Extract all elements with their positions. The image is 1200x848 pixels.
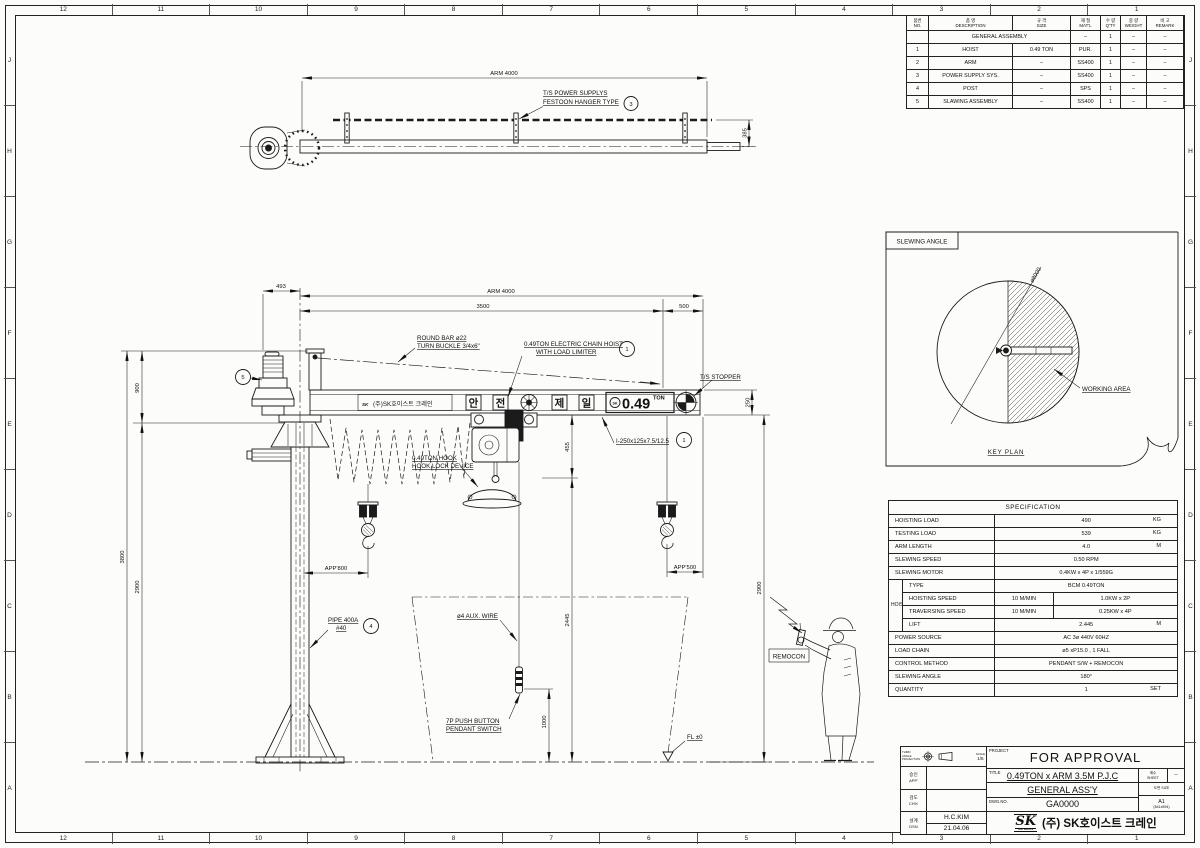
dim-2900-right: 2900 bbox=[757, 582, 763, 595]
hook-label-2: HOOK LOCK DEVICE bbox=[412, 463, 474, 470]
fl-label: FL ±0 bbox=[687, 734, 703, 741]
cell: – bbox=[1013, 83, 1071, 96]
cell: POWER SUPPLY SYS. bbox=[929, 70, 1013, 83]
dim-2900-left: 2900 bbox=[135, 581, 141, 594]
spec-value: 0.4KW x 4P x 1/559G bbox=[995, 567, 1178, 580]
size-value-mm: (841x594) bbox=[1153, 805, 1169, 809]
hook-right bbox=[657, 416, 677, 549]
beam-char-1: 안 bbox=[469, 397, 479, 410]
dim-1000: 1000 bbox=[542, 716, 548, 729]
approve-en: APP' bbox=[909, 778, 918, 783]
fan-emblem bbox=[521, 395, 537, 411]
keyplan-caption: KEY PLAN bbox=[988, 449, 1025, 456]
drawing-title-line2: GENERAL ASS'Y bbox=[1027, 785, 1097, 795]
design-row: 설계DSN H.C.KIM21.04.06 bbox=[901, 812, 986, 834]
dim-app800: APP'800 bbox=[325, 566, 347, 572]
spec-label: LOAD CHAIN bbox=[889, 645, 995, 658]
spec-value: 10 M/MIN bbox=[995, 593, 1053, 606]
project-label: PROJECT bbox=[989, 748, 1009, 753]
cell: POST bbox=[929, 83, 1013, 96]
spec-label: SLEWING SPEED bbox=[889, 554, 995, 567]
festoon-label-2: FESTOON HANGER TYPE bbox=[543, 99, 619, 106]
cell: – bbox=[1121, 96, 1147, 109]
spec-unit: KG bbox=[1153, 517, 1161, 523]
sk-logo-sub: S.K HOIST bbox=[1015, 828, 1036, 832]
parts-header-row: 품번NO. 품 명DESCRIPTION 규 격SIZE 재 질MAT'L 수 … bbox=[907, 16, 1184, 31]
cell: 0.49 TON bbox=[1013, 44, 1071, 57]
cell: – bbox=[1121, 44, 1147, 57]
project-value: FOR APPROVAL bbox=[1030, 750, 1141, 765]
spec-label: SLEWING MOTOR bbox=[889, 567, 995, 580]
beam-char-4: 일 bbox=[582, 397, 592, 410]
cell: 1 bbox=[1101, 96, 1121, 109]
fl-marker bbox=[663, 752, 673, 761]
title-row-2: GENERAL ASS'Y bbox=[987, 782, 1138, 796]
size-value-cell: A1 (841x594) bbox=[1139, 796, 1184, 811]
cell: 1 bbox=[1101, 31, 1121, 44]
balloon-4-number: 4 bbox=[369, 624, 373, 630]
tie-rod bbox=[317, 358, 660, 384]
table-row: GENERAL ASSEMBLY–1–– bbox=[907, 31, 1184, 44]
table-row: 3POWER SUPPLY SYS.–SS4001–– bbox=[907, 70, 1184, 83]
pendant-switch bbox=[516, 667, 523, 693]
dwgno-label: DWG.NO. bbox=[989, 799, 1008, 804]
spec-unit: M bbox=[1156, 543, 1161, 549]
design-en: DSN bbox=[909, 824, 917, 829]
cell: – bbox=[1121, 83, 1147, 96]
scale-value: 1/5 bbox=[976, 756, 985, 761]
capacity-unit: TON bbox=[653, 396, 665, 402]
dim-500: 500 bbox=[679, 304, 689, 310]
dim-3500: 3500 bbox=[477, 304, 490, 310]
dim-3800: 3800 bbox=[120, 551, 126, 564]
cell: HOIST bbox=[929, 44, 1013, 57]
dim-2445: 2445 bbox=[565, 614, 571, 627]
cell: – bbox=[1147, 44, 1184, 57]
aux-wire-label: ø4 AUX. WIRE bbox=[457, 613, 498, 620]
spec-label: SLEWING ANGLE bbox=[889, 671, 995, 684]
spec-label: LIFT bbox=[903, 619, 995, 632]
page-curl bbox=[1121, 437, 1178, 466]
cell: 2 bbox=[907, 57, 929, 70]
spec-unit: KG bbox=[1153, 530, 1161, 536]
ts-stopper bbox=[674, 391, 698, 415]
radio-signal bbox=[770, 597, 802, 633]
beam-char-3: 제 bbox=[555, 397, 565, 410]
spec-value: 1.0KW x 2P bbox=[1053, 593, 1177, 606]
beam-section-label: I-250x125x7.5/12.5 bbox=[616, 438, 670, 445]
sheet-cell: 매수SHEET – bbox=[1139, 769, 1184, 783]
spec-value: 180° bbox=[995, 671, 1178, 684]
pipe-label-2: #40 bbox=[336, 625, 347, 632]
spec-label: POWER SOURCE bbox=[889, 632, 995, 645]
cell bbox=[907, 31, 929, 44]
dim-900: 900 bbox=[135, 383, 141, 393]
sheet-value: – bbox=[1168, 769, 1184, 782]
working-area-label: WORKING AREA bbox=[1082, 386, 1131, 393]
balloon-beam-number: 1 bbox=[682, 438, 685, 444]
worker-figure bbox=[798, 618, 860, 761]
spec-label: HOISTING LOAD bbox=[889, 515, 995, 528]
festoon-cable bbox=[330, 419, 470, 484]
title-label: TITLE bbox=[989, 770, 1000, 775]
spec-value: 1 bbox=[1085, 687, 1088, 693]
cell: – bbox=[1147, 31, 1184, 44]
beam-brand-text: (주)SK호이스트 크레인 bbox=[373, 400, 433, 408]
ts-stopper-label: T/S STOPPER bbox=[700, 374, 741, 381]
keyplan-title: SLEWING ANGLE bbox=[897, 239, 948, 246]
table-row: 2ARM–SS4001–– bbox=[907, 57, 1184, 70]
spec-label: ARM LENGTH bbox=[889, 541, 995, 554]
check-en: CH'K bbox=[909, 801, 918, 806]
hook-left bbox=[358, 484, 378, 549]
spec-value: 10 M/MIN bbox=[995, 606, 1053, 619]
pendant-label-1: 7P PUSH BUTTON bbox=[446, 718, 499, 725]
size-label-cell: 도면 SIZE bbox=[1139, 783, 1184, 797]
dim-arm4000: ARM 4000 bbox=[487, 289, 514, 295]
spec-hoist-group: HOIST bbox=[889, 580, 903, 632]
hoist-label-2: WITH LOAD LIMITER bbox=[536, 349, 597, 356]
cell: PUR. bbox=[1071, 44, 1101, 57]
pivot-plan bbox=[250, 127, 319, 169]
work-zone-outline bbox=[412, 597, 688, 761]
dim-493: 493 bbox=[276, 284, 286, 290]
plan-385-dim: 385 bbox=[743, 128, 749, 138]
cell: 1 bbox=[1101, 70, 1121, 83]
spec-label: CONTROL METHOD bbox=[889, 658, 995, 671]
balloon-5-number: 5 bbox=[241, 375, 244, 381]
drawing-title-line1: 0.49TON x ARM 3.5M P.J.C bbox=[1007, 771, 1118, 781]
balloon-1-number: 1 bbox=[625, 347, 628, 353]
festoon-hangers bbox=[345, 113, 687, 143]
remocon-label: REMOCON bbox=[773, 654, 805, 661]
cell: 3 bbox=[907, 70, 929, 83]
slewing-assembly bbox=[247, 352, 329, 461]
dim-455: 455 bbox=[565, 442, 571, 452]
cell: GENERAL ASSEMBLY bbox=[929, 31, 1071, 44]
capacity-logo: SK bbox=[613, 401, 618, 405]
parts-table: 품번NO. 품 명DESCRIPTION 규 격SIZE 재 질MAT'L 수 … bbox=[906, 15, 1184, 109]
cell: – bbox=[1013, 70, 1071, 83]
dwgno-value: GA0000 bbox=[1046, 799, 1079, 809]
check-value bbox=[927, 790, 986, 812]
cell: – bbox=[1147, 57, 1184, 70]
spec-value: 490 bbox=[1082, 518, 1091, 524]
festoon-label-1: T/S POWER SUPPLYS bbox=[543, 90, 608, 97]
table-row: 1HOIST0.49 TONPUR.1–– bbox=[907, 44, 1184, 57]
project-cell: PROJECT FOR APPROVAL bbox=[987, 747, 1184, 769]
sheet-en: SHEET bbox=[1147, 776, 1159, 780]
hook-label-1: 0.49TON HOOK bbox=[412, 455, 458, 462]
sk-logo-text: SK bbox=[1015, 814, 1036, 829]
cell: SS400 bbox=[1071, 57, 1101, 70]
key-plan-panel bbox=[886, 232, 1178, 466]
cell: – bbox=[1013, 57, 1071, 70]
col-no-en: NO. bbox=[907, 23, 928, 29]
spec-unit: SET bbox=[1150, 686, 1161, 692]
pipe-label-1: PIPE 400A bbox=[328, 617, 359, 624]
company-name: (주) SK호이스트 크레인 bbox=[1042, 815, 1157, 831]
cell: 1 bbox=[1101, 44, 1121, 57]
cell: 1 bbox=[1101, 83, 1121, 96]
spec-value: ø5 xP15.0 , 1 FALL bbox=[995, 645, 1178, 658]
beam-char-2: 전 bbox=[496, 397, 506, 410]
cell: 5 bbox=[907, 96, 929, 109]
approve-value bbox=[927, 767, 986, 789]
projection-cell: THIRD ANGLE PROJECTION SCALE1/5 bbox=[901, 747, 986, 767]
col-qty-en: Q'TY bbox=[1101, 23, 1120, 29]
sk-logo: SKS.K HOIST bbox=[1014, 814, 1037, 833]
cell: SPS bbox=[1071, 83, 1101, 96]
beam-brand-logo: SK bbox=[362, 402, 369, 407]
drawing-sheet: 121110987654321 121110987654321 JHGFEDCB… bbox=[0, 0, 1200, 848]
spec-value: 539 bbox=[1082, 531, 1091, 537]
dim-app500: APP'500 bbox=[674, 565, 696, 571]
spec-title: SPECIFICATION bbox=[889, 501, 1178, 515]
cell: SS400 bbox=[1071, 70, 1101, 83]
title-block: THIRD ANGLE PROJECTION SCALE1/5 승인APP' 검… bbox=[900, 746, 1185, 835]
dim-250: 250 bbox=[746, 398, 752, 408]
cell: – bbox=[1121, 31, 1147, 44]
cell: 1 bbox=[1101, 57, 1121, 70]
spec-value: 4.0 bbox=[1082, 544, 1090, 550]
spec-value: 0.25KW x 4P bbox=[1053, 606, 1177, 619]
crane-drawing: ARM 4000 T/S POWER SUPPLYS FESTOON HANGE… bbox=[0, 0, 1200, 848]
cell: – bbox=[1121, 57, 1147, 70]
designer-name: H.C.KIM bbox=[927, 812, 986, 822]
cell: – bbox=[1147, 83, 1184, 96]
col-rm-en: REMARK bbox=[1147, 23, 1183, 29]
balloon-3-number: 3 bbox=[629, 102, 632, 108]
design-date: 21.04.06 bbox=[927, 823, 986, 834]
cell: – bbox=[1121, 70, 1147, 83]
spec-value: BCM 0.49TON bbox=[995, 580, 1178, 593]
spec-value: 0.50 RPM bbox=[995, 554, 1178, 567]
title-row-1: TITLE0.49TON x ARM 3.5M P.J.C bbox=[987, 769, 1138, 782]
plan-arm-dim: ARM 4000 bbox=[490, 71, 517, 77]
spec-label: TRAVERSING SPEED bbox=[903, 606, 995, 619]
spec-label: HOISTING SPEED bbox=[903, 593, 995, 606]
check-row: 검도CH'K bbox=[901, 790, 986, 813]
spec-label: QUANTITY bbox=[889, 684, 995, 697]
col-matl-en: MAT'L bbox=[1071, 23, 1100, 29]
dwgno-row: DWG.NO.GA0000 bbox=[987, 797, 1138, 811]
col-desc-en: DESCRIPTION bbox=[929, 23, 1012, 29]
cell: – bbox=[1013, 96, 1071, 109]
cell: – bbox=[1147, 70, 1184, 83]
chain-hoist bbox=[463, 410, 537, 508]
cell: – bbox=[1071, 31, 1101, 44]
specification-table: SPECIFICATION HOISTING LOAD490KG TESTING… bbox=[888, 500, 1178, 697]
cell: SLAWING ASSEMBLY bbox=[929, 96, 1013, 109]
table-row: 4POST–SPS1–– bbox=[907, 83, 1184, 96]
spec-value: 2.445 bbox=[1079, 622, 1093, 628]
spec-label: TESTING LOAD bbox=[889, 528, 995, 541]
projection-label: THIRD ANGLE PROJECTION bbox=[902, 751, 919, 761]
third-angle-symbol bbox=[921, 750, 955, 763]
round-bar-label-2: TURN BUCKLE 3/4x6" bbox=[417, 343, 480, 350]
spec-label: TYPE bbox=[903, 580, 995, 593]
arm-symbol bbox=[996, 345, 1072, 356]
spec-unit: M bbox=[1156, 621, 1161, 627]
col-size-en: SIZE bbox=[1013, 23, 1070, 29]
plan-view bbox=[240, 78, 756, 169]
hoist-label-1: 0.49TON ELECTRIC CHAIN HOIST bbox=[524, 341, 623, 348]
cell: 1 bbox=[907, 44, 929, 57]
spec-value: AC 3ø 440V 60HZ bbox=[995, 632, 1178, 645]
elevation-view bbox=[85, 288, 874, 772]
cell: 4 bbox=[907, 83, 929, 96]
col-wt-en: WEIGHT bbox=[1121, 23, 1146, 29]
pendant-label-2: PENDANT SWITCH bbox=[446, 726, 502, 733]
table-row: 5SLAWING ASSEMBLY–SS4001–– bbox=[907, 96, 1184, 109]
spec-value: PENDANT S/W + REMOCON bbox=[995, 658, 1178, 671]
hard-hat bbox=[829, 618, 853, 629]
cell: – bbox=[1147, 96, 1184, 109]
approve-row: 승인APP' bbox=[901, 767, 986, 790]
cell: SS400 bbox=[1071, 96, 1101, 109]
capacity-value: 0.49 bbox=[622, 397, 650, 413]
cell: ARM bbox=[929, 57, 1013, 70]
keyplan-diameter: ø8000 bbox=[1029, 267, 1042, 284]
round-bar-label-1: ROUND BAR ø22 bbox=[417, 335, 467, 342]
company-cell: SKS.K HOIST (주) SK호이스트 크레인 bbox=[987, 812, 1184, 834]
